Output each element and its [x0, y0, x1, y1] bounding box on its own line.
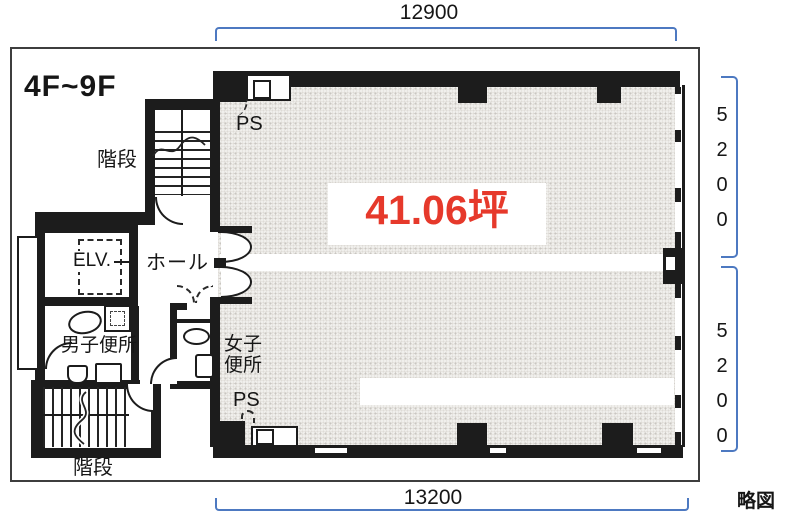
mullion: [675, 395, 681, 408]
window-slit-bottom: [490, 448, 506, 453]
womens-toilet-label: 女子便所: [224, 334, 266, 376]
pillar-bottom-2: [602, 423, 633, 445]
ps-top-label: PS: [236, 113, 263, 135]
wall-elevator-top: [43, 224, 137, 233]
wall-womens-top: [170, 303, 187, 310]
wall-corner-top-left: [213, 71, 247, 102]
wall-lower-stairs-left: [31, 380, 41, 458]
mullion: [675, 284, 681, 298]
column-notch: [666, 257, 675, 270]
wall-elevator-right: [129, 224, 138, 306]
floor-white-band: [360, 378, 674, 405]
stair-break-line: [150, 136, 210, 162]
ps-leader-dashed-bottom: [241, 410, 255, 423]
dimension-right-upper-value: 5200: [712, 104, 732, 244]
urinal-1: [67, 365, 88, 384]
ps-box-top-inner: [253, 80, 271, 99]
mullion: [675, 336, 681, 350]
door-head-stub-bottom: [218, 297, 252, 304]
wall-stairwell-top: [145, 99, 220, 110]
dimension-bottom-value: 13200: [383, 486, 483, 509]
mens-toilet-label: 男子便所: [61, 336, 137, 357]
ps-bottom-label: PS: [233, 389, 260, 411]
mullion: [675, 130, 681, 142]
dimension-right-lower-value: 5200: [712, 320, 732, 460]
hall-label: ホール: [146, 252, 209, 274]
floor-area-label: 41.06坪: [328, 188, 546, 233]
stairs-bottom-label: 階段: [73, 457, 113, 479]
womens-partition: [172, 319, 210, 323]
pillar-top-1: [458, 87, 487, 103]
wall-core-right-upper: [210, 99, 220, 232]
window-slit-bottom: [637, 448, 661, 453]
stair-break-line: [70, 390, 94, 446]
door-stop-block: [214, 258, 226, 268]
urinal-2: [95, 363, 122, 384]
dimension-top-bracket: [215, 27, 677, 41]
floor-divider-band: [220, 254, 674, 271]
pillar-bottom-1: [457, 423, 487, 445]
wall-stairwell-left: [145, 99, 155, 225]
floor-plan-sketch: 12900 5200 5200 13200 略図 4F~9F: [0, 0, 786, 528]
elevator-leader-line: [114, 261, 132, 263]
window-slit-bottom: [315, 448, 347, 453]
elevator-label: ELV.: [73, 251, 111, 272]
mullion: [675, 188, 681, 202]
ps-box-bottom-inner: [256, 429, 274, 445]
floor-range-label: 4F~9F: [24, 70, 117, 103]
womens-sink: [183, 328, 210, 345]
mullion: [675, 87, 681, 94]
dimension-top-value: 12900: [379, 1, 479, 24]
pillar-top-2: [597, 87, 621, 103]
stairs-top-label: 階段: [97, 149, 137, 171]
sketch-note: 略図: [737, 492, 775, 513]
mens-cabinet-detail: [110, 311, 125, 326]
womens-wc: [195, 354, 214, 378]
left-recess: [17, 236, 39, 370]
